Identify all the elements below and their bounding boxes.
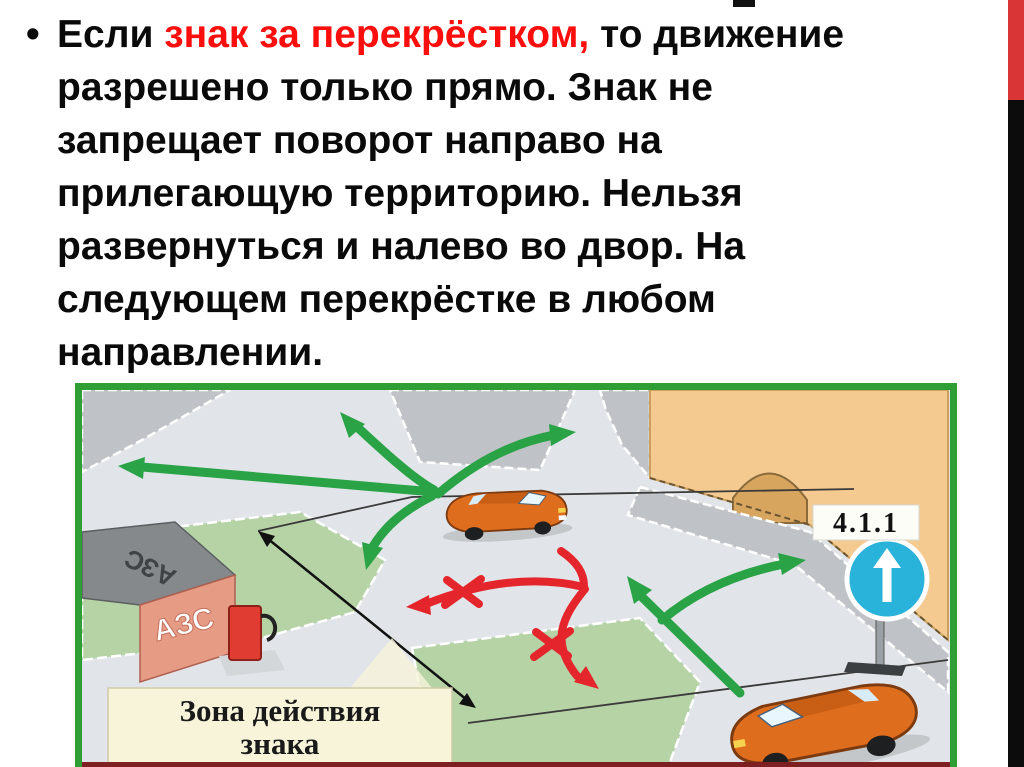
right-edge-black-bar: [1008, 100, 1024, 767]
slide-body-text: Если знак за перекрёстком, то движение р…: [57, 8, 972, 379]
text-segment-black-2: то движение разрешено только прямо. Знак…: [57, 13, 844, 374]
text-segment-black-1: Если: [57, 13, 164, 56]
zone-label-line1: Зона действия: [180, 693, 381, 728]
car-upper-bumper-light: [559, 515, 567, 520]
top-edge-tick-mark: [733, 0, 755, 7]
intersection-scene: АЗС АЗС: [82, 390, 950, 767]
bullet-marker: •: [26, 8, 40, 61]
bottom-cutoff-strip: [82, 762, 950, 767]
zone-label: Зона действия знака: [108, 688, 452, 767]
text-segment-red: знак за перекрёстком,: [164, 13, 589, 56]
traffic-diagram-image: АЗС АЗС: [75, 383, 957, 767]
pump-body-2: [229, 606, 261, 660]
zone-label-line2: знака: [241, 726, 320, 761]
right-edge-red-bar: [1008, 0, 1024, 100]
sign-code-label: 4.1.1: [833, 508, 899, 539]
car-upper-headlight: [558, 508, 566, 513]
